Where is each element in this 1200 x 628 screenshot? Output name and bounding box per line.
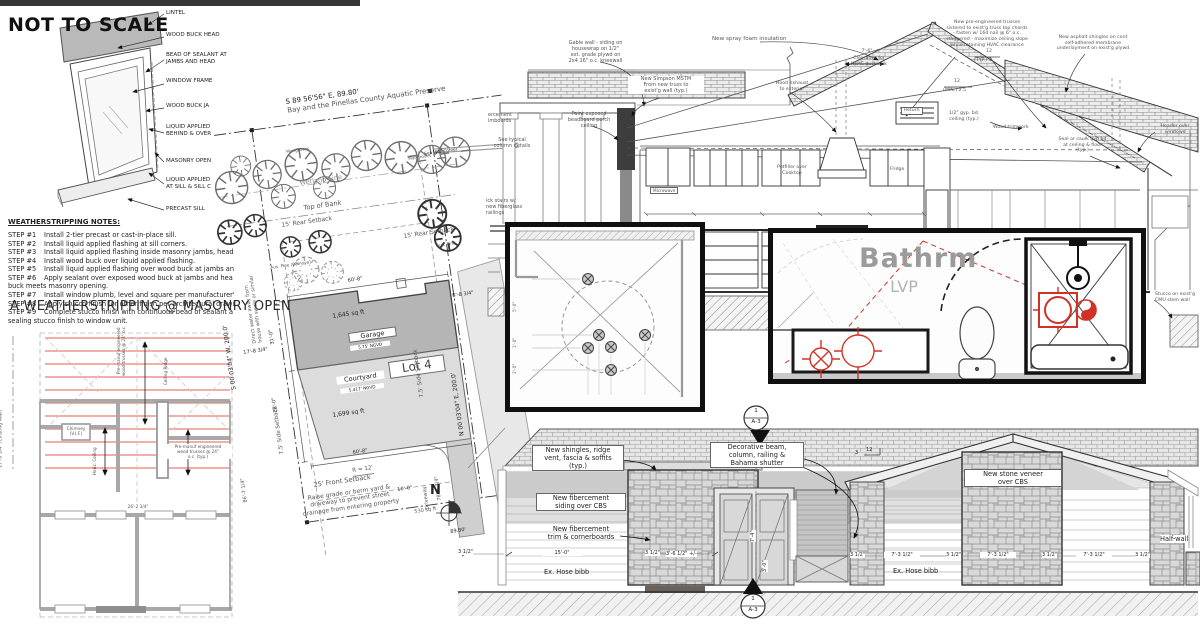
step-row: STEP #4Install wood buck over liquid app… <box>8 257 264 266</box>
step-row: STEP #1Install 2-tier precast or cast-in… <box>8 231 264 240</box>
truss-note: Pre-manuf engineered wood trusses @ 24" … <box>164 444 232 459</box>
section-marker-top-sheet: A-3 <box>745 419 767 426</box>
architectural-drawing-collage: NOT TO SCALE LINTEL WOOD BUCK HEAD BEAD … <box>0 0 1200 628</box>
elevation-linework <box>458 406 1200 618</box>
fridge-label: Fridge <box>890 167 904 173</box>
dim-3-6-5: 3'-6 1/2" +/- <box>666 551 697 557</box>
asphalt-shingles-note: New asphalt shingles on cont self-adhere… <box>1032 35 1154 52</box>
wood-trimwork-note: Wood trimwork <box>993 125 1029 131</box>
hose-bibb-right: Ex. Hose bibb <box>893 567 938 575</box>
hvac-clearance-dim: 7'-6" <box>852 49 882 55</box>
pre-engineered-trusses-note: New pre-engineered trusses sistered to e… <box>928 20 1046 49</box>
hood-exhaust-note: Hood exhaust to exterior <box>763 81 821 92</box>
callout-liquid-applied-sill: LIQUID APPLIED AT SILL & SILL C <box>166 177 211 191</box>
step-row: STEP #3Install liquid applied flashing i… <box>8 248 264 257</box>
hose-bibb-left: Ex. Hose bibb <box>544 568 589 576</box>
truss-note-vertical: Pre-manuf engineered wood trusses @ 24" … <box>116 303 126 398</box>
fibercement-trimboards-note: ercement imboards <box>488 112 538 124</box>
ceiling-dim-1-0: 1'-0" <box>513 338 518 348</box>
section-marker-bottom-num: 1 <box>746 596 760 603</box>
dim-15-0: 15'-0" <box>542 550 582 556</box>
framing-dim-26: 26'-2 3/4" <box>118 504 158 509</box>
existing-wall-dim: 27'-9 3/4" (Existing Wall) <box>0 348 4 468</box>
north-label: N <box>430 483 441 499</box>
step-row: STEP #5Install liquid applied flashing o… <box>8 265 264 274</box>
callout-masonry-opening: MASONRY OPEN <box>166 158 211 165</box>
bathroom-room-name: Bathrm <box>859 243 977 274</box>
dim-door-height: 7'-4" <box>750 530 756 542</box>
gable-slope-rise: 3 <box>855 450 858 456</box>
callout-wood-buck-jamb: WOOD BUCK JA <box>166 103 209 110</box>
dim-rail-height: 3'-0" <box>762 560 768 572</box>
elev-decorative-note: Decorative beam, column, railing & Baham… <box>710 442 804 468</box>
gyp-ceiling-note: 1/2" gyp. bd. ceiling (typ.) <box>938 111 990 122</box>
seal-caulk-note: Seal or caulk gyp bd at ceiling & floor … <box>1040 137 1125 154</box>
dim-3-5-4: 3 1/2" <box>946 552 961 558</box>
callout-wood-buck-head: WOOD BUCK HEAD <box>166 32 220 39</box>
step6-continuation: buck meets masonry opening. <box>8 282 264 291</box>
toilet-symbol-icon <box>959 307 995 379</box>
dim-7-3-1: 7'-3 1/2" <box>884 552 920 558</box>
callout-lintel: LINTEL <box>166 10 185 17</box>
top-edge-bar <box>0 0 360 6</box>
elev-siding-note: New fibercement siding over CBS <box>536 493 626 511</box>
callout-window-frame: WINDOW FRAME <box>166 78 212 85</box>
bathroom-floor-label: LVP <box>859 277 949 296</box>
microwave-label: Microwave <box>650 187 678 194</box>
gable-wall-note: Gable wall - siding on housewrap on 1/2"… <box>548 40 643 64</box>
step-row: STEP #2Install liquid applied flashing a… <box>8 240 264 249</box>
slope-12-typ: 12 <box>986 49 992 55</box>
chimney-label: Chimney (V.I.F.) <box>62 426 90 436</box>
beadboard-note: Paint exposed beadboard porch ceiling <box>556 111 622 129</box>
stucco-stem-wall-note: Stucco on exist'g CMU stem wall <box>1155 292 1200 303</box>
spray-foam-note: New spray foam insulation <box>712 36 787 43</box>
ceiling-dim-2-0: 2'-0" <box>513 364 518 374</box>
ceiling-dim-5-0: 5'-0" <box>513 302 518 312</box>
shower-symbol-icon <box>1026 239 1131 373</box>
elev-stone-note: New stone veneer over CBS <box>964 469 1062 487</box>
dim-7-3-2: 7'-3 1/2" <box>980 552 1016 558</box>
dim-3-5-6: 3 1/2" <box>1135 552 1150 558</box>
bathroom-plan-inset: Bathrm LVP <box>768 228 1146 384</box>
potfiller-cooktop-label: Potfiller over Cooktop <box>764 165 820 176</box>
horiz-ceiling-label: Horiz. Ceiling <box>92 420 97 475</box>
half-wall-label: Half-wall <box>1160 535 1188 543</box>
callout-precast-sill: PRECAST SILL <box>166 206 205 213</box>
ceiling-plan-inset: 5'-0" 1'-0" 2'-0" <box>505 222 705 412</box>
not-to-scale-heading: NOT TO SCALE <box>8 14 169 37</box>
callout-bead-sealant: BEAD OF SEALANT AT JAMBS AND HEAD <box>166 52 227 66</box>
section-marker-top-num: 1 <box>749 408 763 415</box>
dim-3-5-2: 3 1/2" <box>645 550 660 556</box>
window-detail-linework <box>58 12 164 210</box>
section-marker-bottom-sheet: A-3 <box>742 607 764 614</box>
step-row: STEP #6Apply sealant over exposed wood b… <box>8 274 264 283</box>
notes-heading: WEATHERSTRIPPING NOTES: <box>8 218 264 227</box>
header-over-windows-note: Header over windows <box>1150 124 1200 135</box>
ceiling-ridge-label: Ceiling Ridge <box>163 335 168 385</box>
callout-liquid-applied-jamb: LIQUID APPLIED BEHIND & OVER <box>166 124 211 138</box>
elev-shingles-note: New shingles, ridge vent, fascia & soffi… <box>532 445 624 471</box>
slope-12-min: 12 <box>954 79 960 85</box>
elev-trim-note: New fibercement trim & cornerboards <box>536 525 626 541</box>
dim-3-5-3: 3 1/2" <box>850 552 865 558</box>
dim-3-5-1: 3 1/2" <box>458 549 473 555</box>
stairs-railings-note: ick stairs w/ new fiberglass railings <box>486 198 542 216</box>
ceiling-plan-linework <box>510 227 700 407</box>
column-details-note: See typical column details <box>486 137 538 149</box>
dim-3-5-5: 3 1/2" <box>1042 552 1057 558</box>
slope-2-5-min: (MIN.) 2.5 <box>943 88 966 94</box>
dim-7-3-3: 7'-3 1/2" <box>1076 552 1112 558</box>
hvac-clearance-note: Clearance for HVAC ductwork <box>843 56 895 67</box>
slope-5-typ: (TYP.) 5 <box>974 58 991 64</box>
gable-slope-run: 12 <box>866 447 872 453</box>
simpson-strap-note: New Simpson MSTM From new truss to exist… <box>628 76 704 94</box>
return-grille-label: Return <box>901 107 923 115</box>
